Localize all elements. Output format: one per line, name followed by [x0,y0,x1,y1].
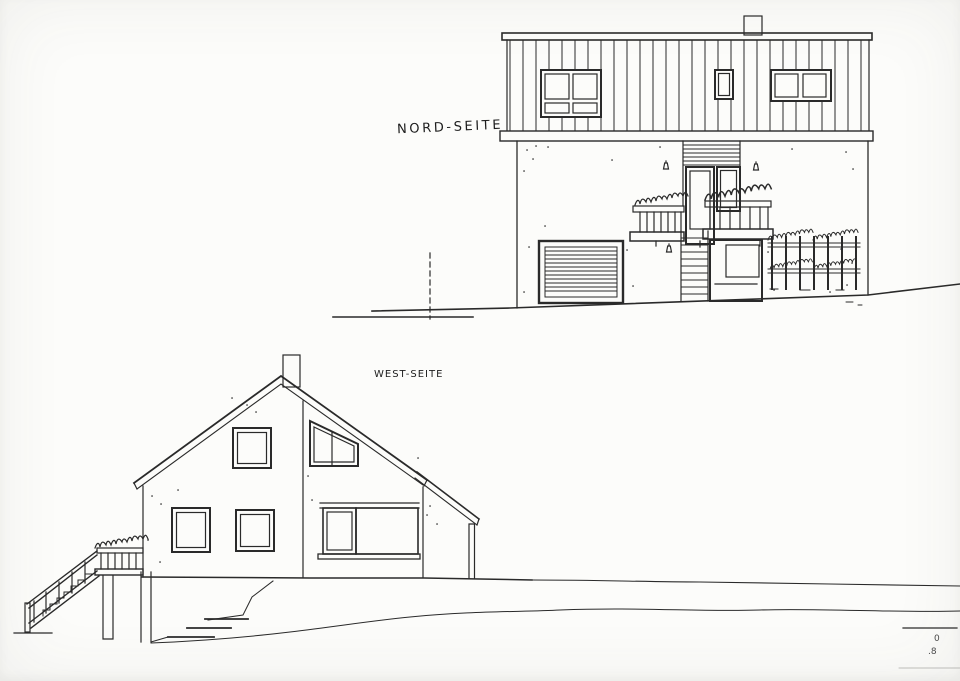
trellis [768,229,860,290]
west-wall-stipple [148,398,437,562]
ground-line-right [532,580,960,586]
title-block-text-fragment: .8 [928,647,937,657]
north-roof-edge [502,33,872,40]
wall-lamp-icon [754,162,759,170]
north-upper-right-window [771,70,831,101]
wall-lamp-icon [667,244,672,252]
west-window-2 [236,510,274,551]
gable-square-window [233,428,271,468]
gable-trapezoid-window [310,421,358,466]
scanned-blueprint-page: NORD-SEITE WEST-SEITE 0 .8 [0,0,960,681]
west-window-1 [172,508,210,552]
north-ground-line [333,284,960,317]
north-eave-band [500,131,873,141]
north-upper-left-window [541,70,601,117]
landing-plants [95,535,148,548]
west-exterior-stair [14,535,151,642]
balcony-plants [635,192,688,205]
west-elevation-label: WEST-SEITE [374,369,443,380]
north-balcony-left [630,206,684,241]
porch-post [469,524,475,578]
west-window-band [318,503,420,559]
north-balcony-door [686,167,714,244]
west-chimney [283,355,300,387]
west-walls [143,401,423,577]
north-entry-door [710,240,762,301]
west-elevation-drawing [14,355,960,643]
elevation-drawings-canvas [0,0,960,681]
west-base-line [142,577,532,580]
north-chimney [744,16,762,35]
wall-lamp-icon [664,161,669,169]
garage-door [539,241,623,303]
terrain-line [151,609,960,643]
terrain-steps [151,581,273,642]
north-upper-middle-window [715,70,733,99]
title-block-text-fragment: 0 [934,634,940,644]
north-elevation-drawing [333,16,960,319]
